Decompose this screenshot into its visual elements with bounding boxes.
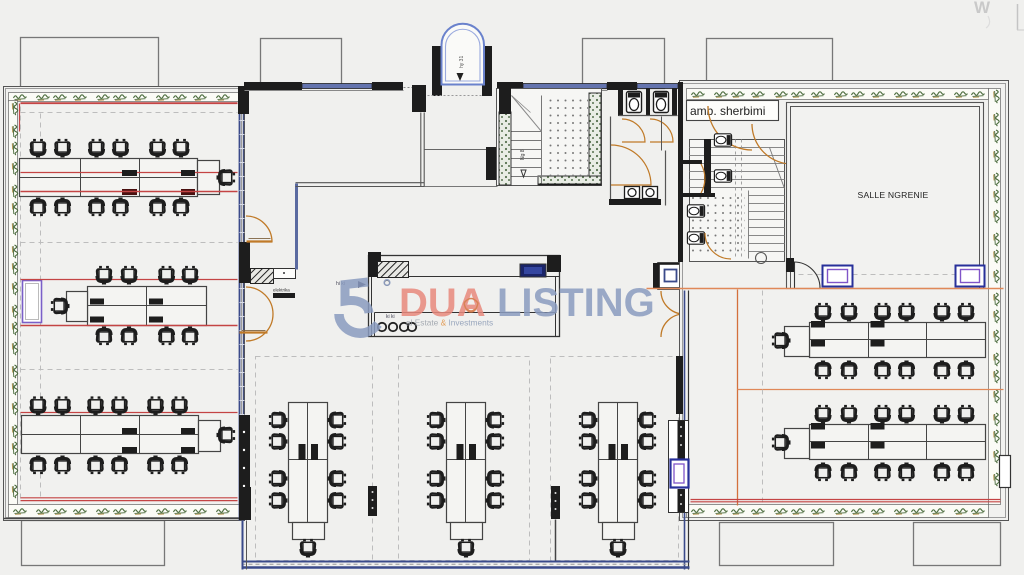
svg-text:Ng 8: Ng 8 (520, 149, 526, 160)
svg-text:SALLE NGRENIE: SALLE NGRENIE (858, 190, 929, 200)
svg-text:elektrika: elektrika (273, 288, 290, 293)
svg-text:al Estate & Investments: al Estate & Investments (406, 318, 493, 328)
svg-text:amb. sherbimi: amb. sherbimi (690, 104, 765, 118)
svg-text:ki ki: ki ki (386, 314, 395, 320)
svg-text:LISTING: LISTING (497, 281, 655, 325)
svg-text:W: W (974, 0, 991, 17)
svg-text:hy 31: hy 31 (459, 56, 465, 68)
